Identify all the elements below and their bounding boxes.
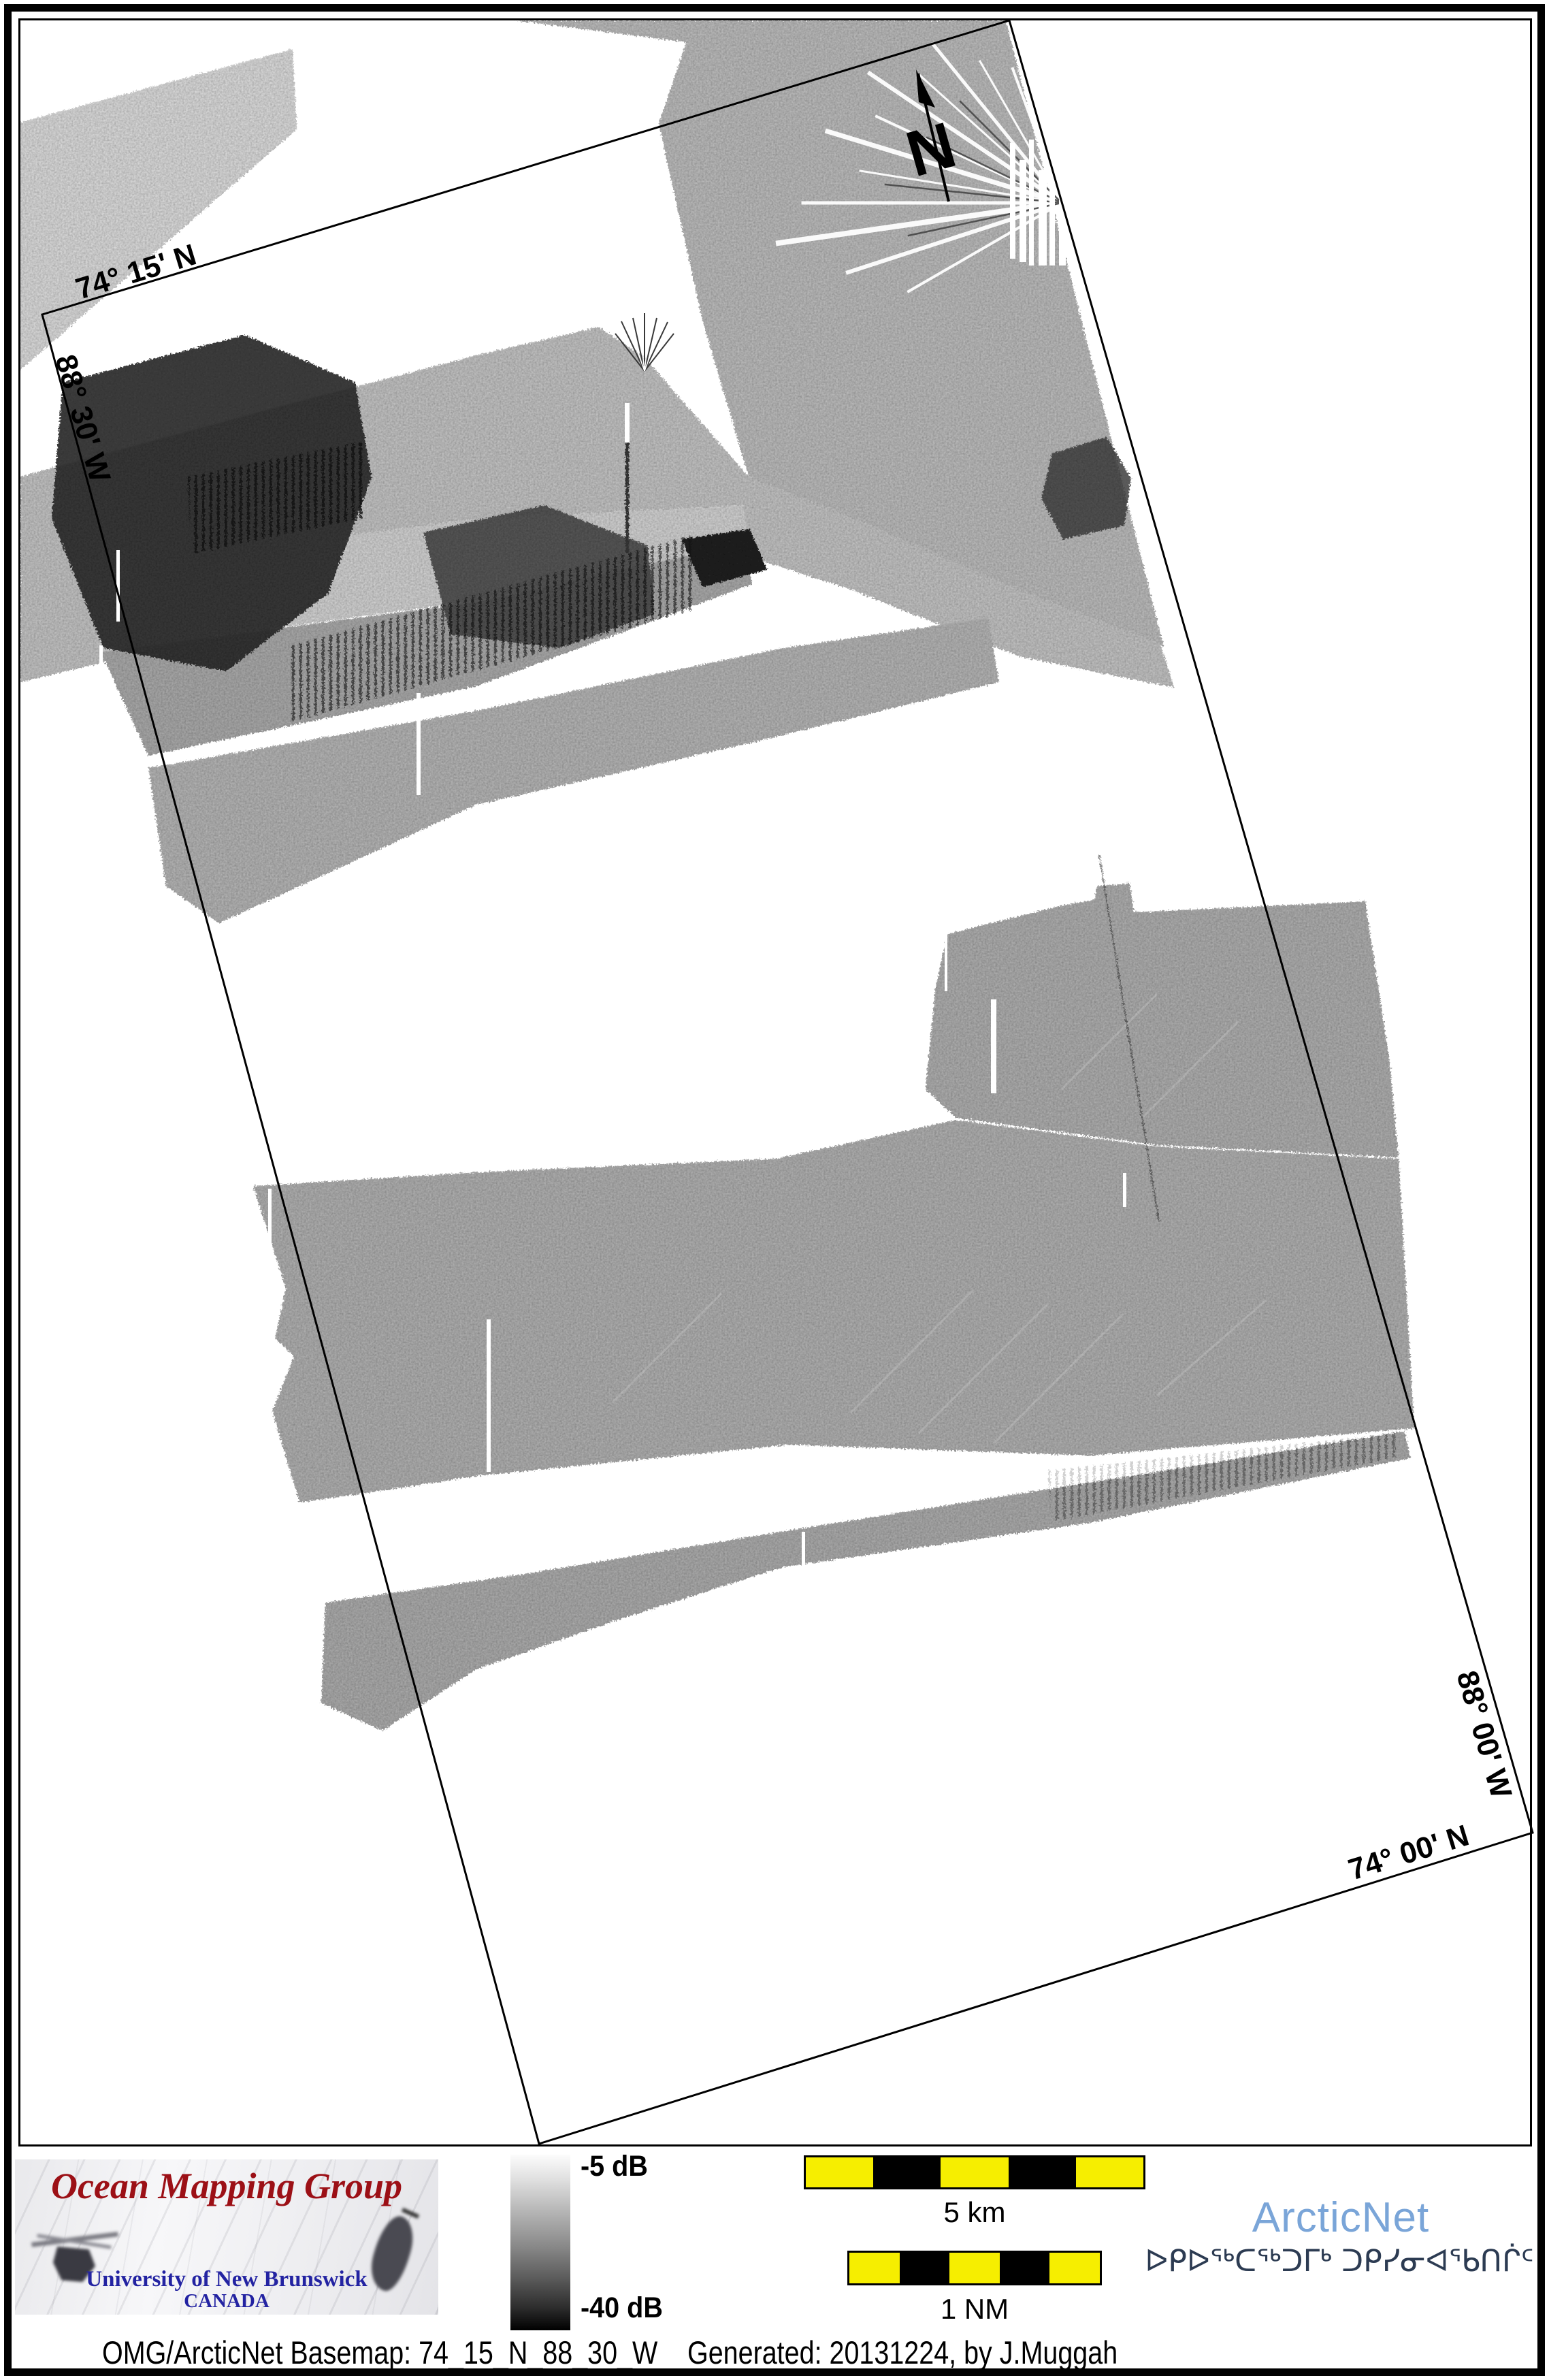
sonar-swath: [19, 49, 297, 371]
caption-generated: Generated: 20131224, by J.Muggah: [687, 2334, 1118, 2370]
basemap-caption: OMG/ArcticNet Basemap: 74_15_N_88_30_WGe…: [102, 2334, 1118, 2371]
scalebar-km: [804, 2155, 1145, 2189]
colorbar-max-label: -5 dB: [581, 2150, 648, 2183]
sonar-mosaic: [19, 20, 1414, 1731]
scalebar-km-label: 5 km: [804, 2196, 1145, 2229]
legend-panel: Ocean Mapping Group University of New Br…: [12, 2149, 1537, 2368]
omg-country: CANADA: [15, 2290, 438, 2313]
omg-title: Ocean Mapping Group: [15, 2165, 438, 2207]
scalebar-nm-label: 1 NM: [847, 2293, 1102, 2326]
sonar-swath: [926, 883, 1399, 1157]
lon-label-right: 88° 00' W: [1450, 1667, 1518, 1802]
sonar-map-canvas: 74° 15' N 88° 30' W 88° 00' W 74° 00' N …: [0, 0, 1549, 2380]
arcticnet-inuktitut: ᐅᑭᐅᖅᑕᖅᑐᒥᒃ ᑐᑭᓯᓂᐊᖃᑎᒌᑦ: [1130, 2244, 1549, 2279]
lat-label-bottom-right: 74° 00' N: [1345, 1818, 1473, 1886]
caption-basemap: OMG/ArcticNet Basemap: 74_15_N_88_30_W: [102, 2334, 657, 2370]
backscatter-colorbar: [510, 2155, 570, 2330]
omg-logo: Ocean Mapping Group University of New Br…: [15, 2159, 438, 2315]
dark-seam: [625, 443, 629, 553]
omg-university: University of New Brunswick: [15, 2267, 438, 2292]
basemap-page: 74° 15' N 88° 30' W 88° 00' W 74° 00' N …: [0, 0, 1549, 2380]
arcticnet-logo: ArcticNet: [1198, 2193, 1484, 2242]
sonar-swath: [253, 1120, 1414, 1502]
colorbar-min-label: -40 dB: [581, 2291, 663, 2325]
scalebar-nm: [847, 2251, 1102, 2285]
